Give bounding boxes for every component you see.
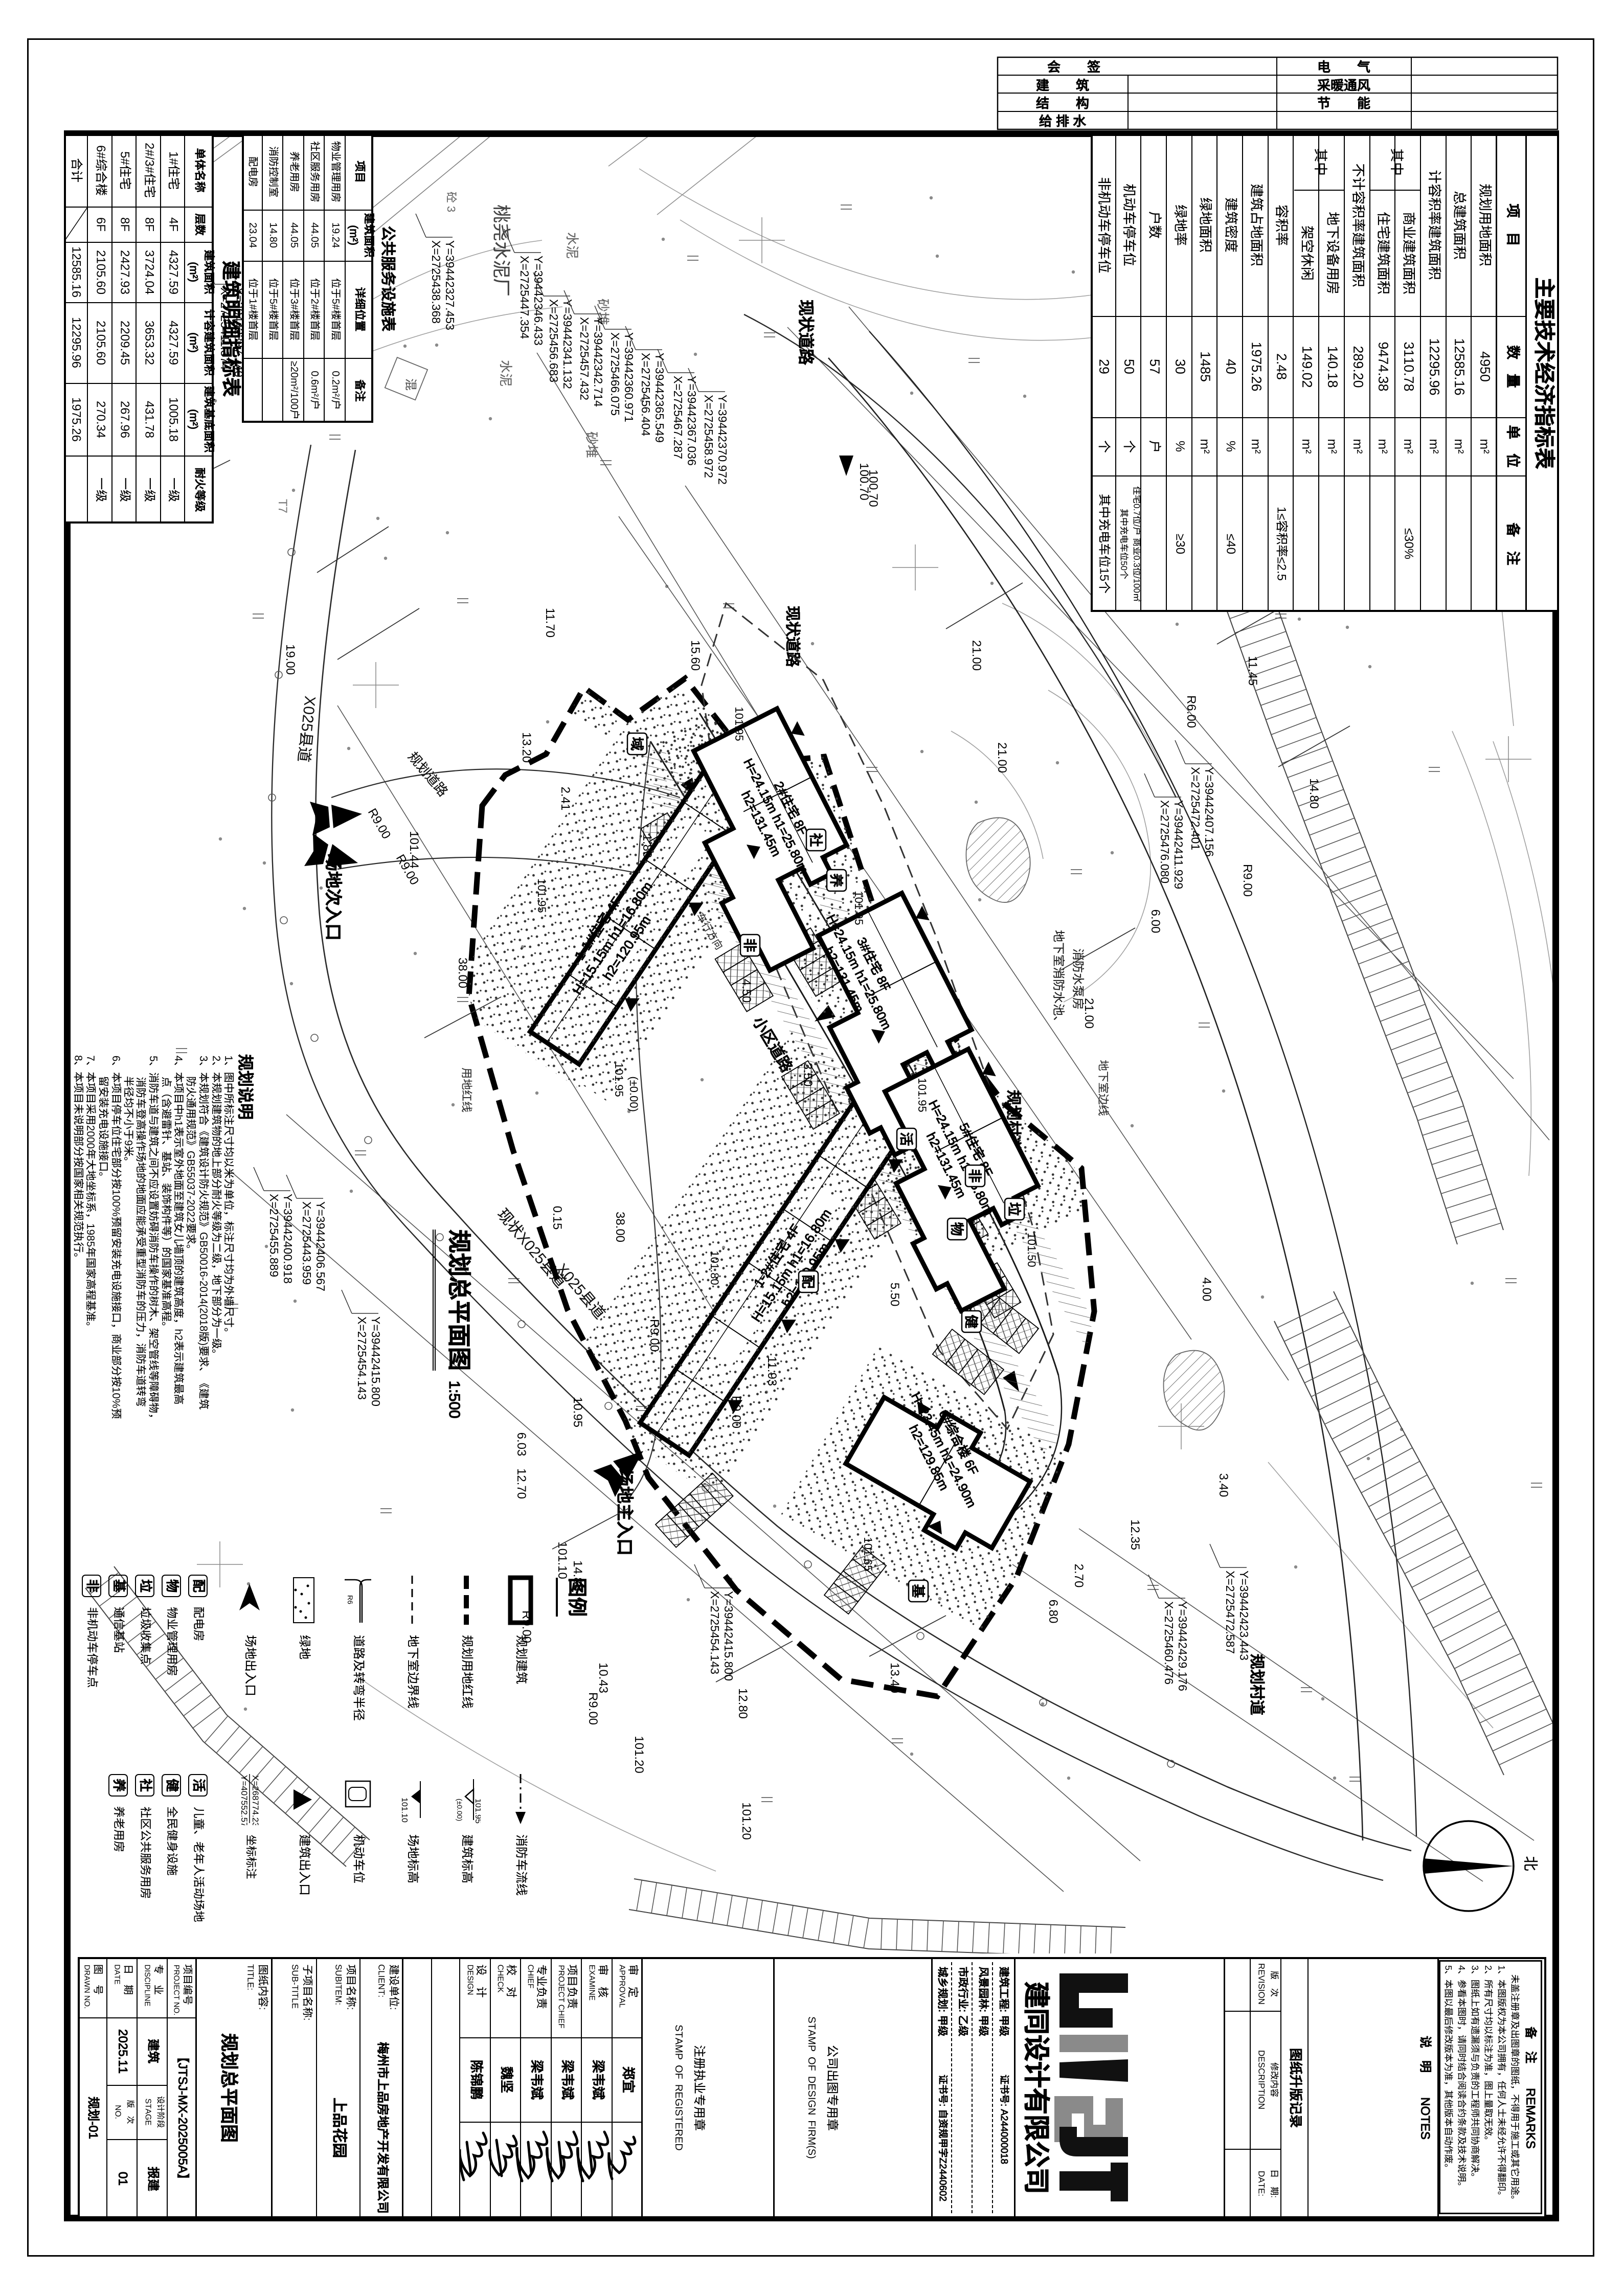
svg-text:(±0.00): (±0.00) (456, 1799, 464, 1821)
svg-text:X=268774.232: X=268774.232 (251, 1775, 260, 1825)
svg-text:101.10: 101.10 (400, 1798, 409, 1823)
svg-text:R6: R6 (346, 1595, 354, 1604)
svg-text:Y=407552.572: Y=407552.572 (239, 1775, 249, 1825)
svg-text:101.95: 101.95 (473, 1799, 481, 1824)
